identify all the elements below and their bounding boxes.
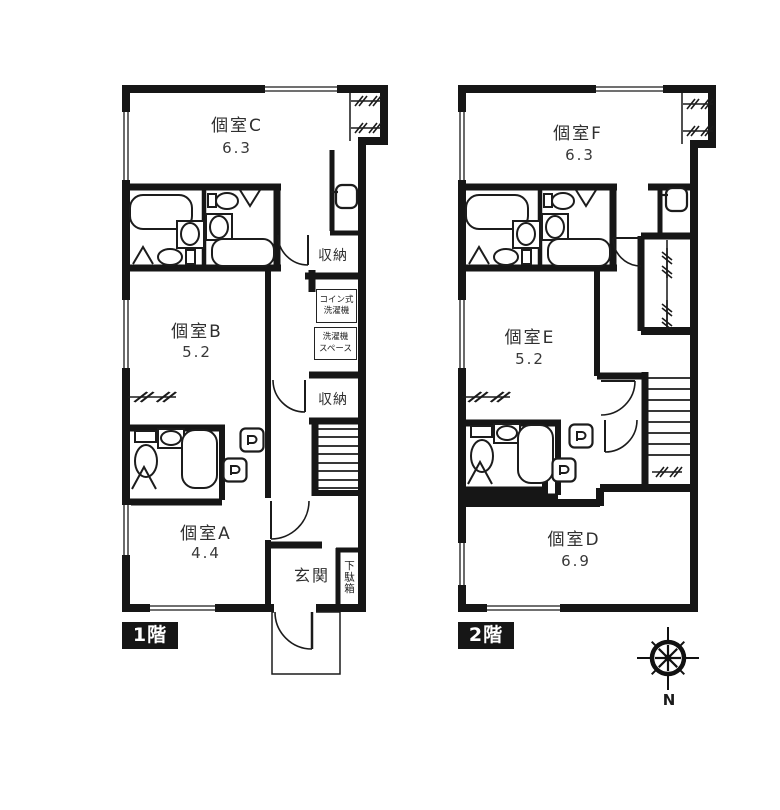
entrance-door-arc	[275, 612, 312, 649]
entrance-porch	[272, 612, 340, 674]
room-e-area: 5.2	[500, 350, 560, 368]
floor1-badge: 1階	[122, 622, 178, 649]
door-arcs	[271, 235, 309, 539]
shoe-cabinet-label: 下駄箱	[342, 560, 357, 606]
room-c-label: 個室C	[192, 111, 282, 136]
room-b-label: 個室B	[152, 317, 242, 342]
storage-upper-label: 収納	[303, 245, 363, 265]
room-f-label: 個室F	[533, 119, 623, 144]
entrance-label: 玄関	[277, 562, 347, 586]
coin-washer-box: コイン式 洗濯機	[316, 289, 357, 323]
floor2-badge: 2階	[458, 622, 514, 649]
storage-lower-label: 収納	[303, 389, 363, 409]
room-a-area: 4.4	[176, 544, 236, 562]
room-b-area: 5.2	[167, 343, 227, 361]
washer-space-box: 洗濯機 スペース	[314, 327, 357, 360]
room-d-label: 個室D	[529, 525, 619, 550]
room-d-area: 6.9	[546, 552, 606, 570]
floorplan-canvas: 個室C 6.3 個室B 5.2 個室A 4.4 収納 収納 コイン式 洗濯機 洗…	[0, 0, 780, 810]
stairs	[318, 429, 358, 488]
floorplan-graphics	[0, 0, 780, 810]
room-a-label: 個室A	[161, 519, 251, 544]
room-f-area: 6.3	[550, 146, 610, 164]
compass-north-label: N	[655, 691, 683, 709]
room-e-label: 個室E	[485, 323, 575, 348]
stairs	[648, 378, 690, 455]
compass-icon	[637, 627, 699, 690]
room-c-area: 6.3	[207, 139, 267, 157]
